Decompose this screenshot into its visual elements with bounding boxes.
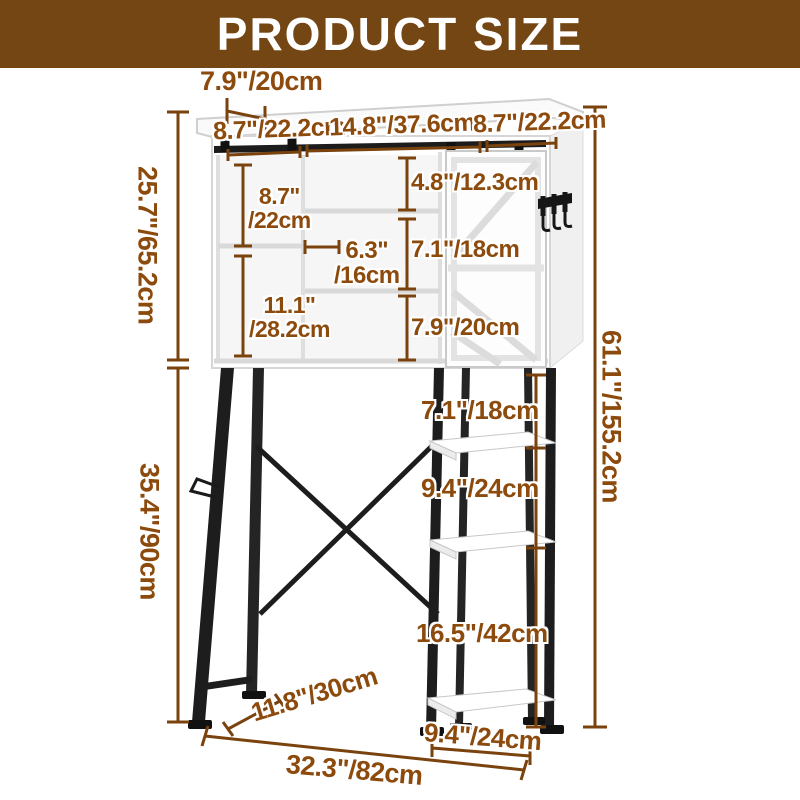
title-bar: PRODUCT SIZE	[0, 0, 800, 68]
label-cabinet-height: 25.7"/65.2cm	[133, 166, 161, 324]
page-title: PRODUCT SIZE	[217, 11, 583, 57]
label-stand-height: 35.4"/90cm	[135, 463, 163, 600]
left-front-leg	[192, 368, 234, 722]
label-top-width-left: 8.7"/22.2cm	[213, 114, 347, 145]
label-top-width-middle: 14.8"/37.6cm	[329, 109, 476, 140]
x-cross-brace	[256, 444, 438, 614]
label-lower-left-cubby-in: 11.1"	[249, 293, 330, 317]
product-size-infographic: PRODUCT SIZE 7.9"/20cm 8.7"/22.2cm 14.8"…	[0, 0, 800, 800]
label-lower-middle-cubby: 7.9"/20cm	[411, 315, 519, 340]
label-upper-left-cubby-in: 8.7"	[248, 184, 311, 208]
label-upper-left-cubby: 8.7" /22cm	[248, 184, 311, 232]
label-upper-middle-cubby: 4.8"/12.3cm	[411, 170, 538, 195]
label-middle-cubby-height: 7.1"/18cm	[411, 237, 519, 262]
label-stand-gap-middle: 9.4"/24cm	[421, 475, 539, 502]
label-middle-cubby-width-in: 6.3"	[334, 238, 400, 263]
label-top-width-right: 8.7"/22.2cm	[473, 107, 607, 138]
dim-line-cabinet-height	[167, 112, 189, 360]
cabinet-side-panel	[550, 121, 583, 368]
left-back-leg	[246, 368, 264, 694]
label-stand-gap-top: 7.1"/18cm	[421, 397, 539, 424]
label-middle-cubby-width: 6.3" /16cm	[334, 238, 400, 288]
label-middle-cubby-width-cm: /16cm	[334, 263, 400, 288]
hook-rack	[538, 192, 572, 231]
label-total-height: 61.1"/155.2cm	[597, 330, 625, 503]
label-upper-left-cubby-cm: /22cm	[248, 208, 311, 232]
label-top-depth: 7.9"/20cm	[200, 67, 322, 95]
label-lower-left-cubby: 11.1" /28.2cm	[249, 293, 330, 341]
dim-line-stand-height	[167, 368, 189, 722]
label-stand-gap-bottom: 16.5"/42cm	[416, 620, 548, 647]
label-lower-left-cubby-cm: /28.2cm	[249, 317, 330, 341]
